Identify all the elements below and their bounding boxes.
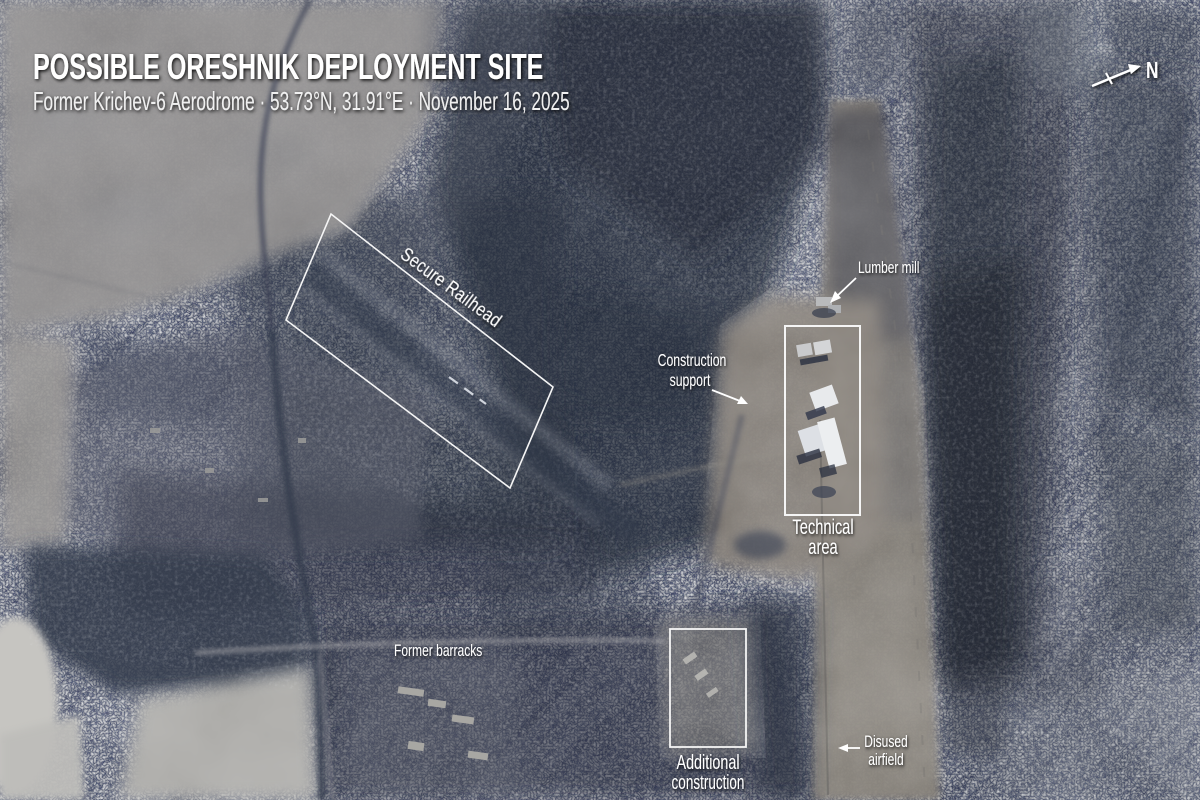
svg-text:construction: construction [672, 770, 745, 794]
svg-text:N: N [1146, 59, 1158, 84]
svg-text:POSSIBLE ORESHNIK DEPLOYMENT S: POSSIBLE ORESHNIK DEPLOYMENT SITE [33, 46, 543, 87]
svg-text:Former Krichev-6 Aerodrome · 5: Former Krichev-6 Aerodrome · 53.73°N, 31… [33, 86, 570, 115]
svg-text:area: area [808, 535, 838, 558]
svg-text:Construction: Construction [658, 351, 727, 371]
svg-text:airfield: airfield [868, 751, 903, 769]
svg-text:Former barracks: Former barracks [394, 642, 482, 660]
svg-text:support: support [670, 371, 711, 391]
svg-text:Disused: Disused [864, 733, 908, 751]
svg-text:Lumber mill: Lumber mill [858, 259, 919, 278]
